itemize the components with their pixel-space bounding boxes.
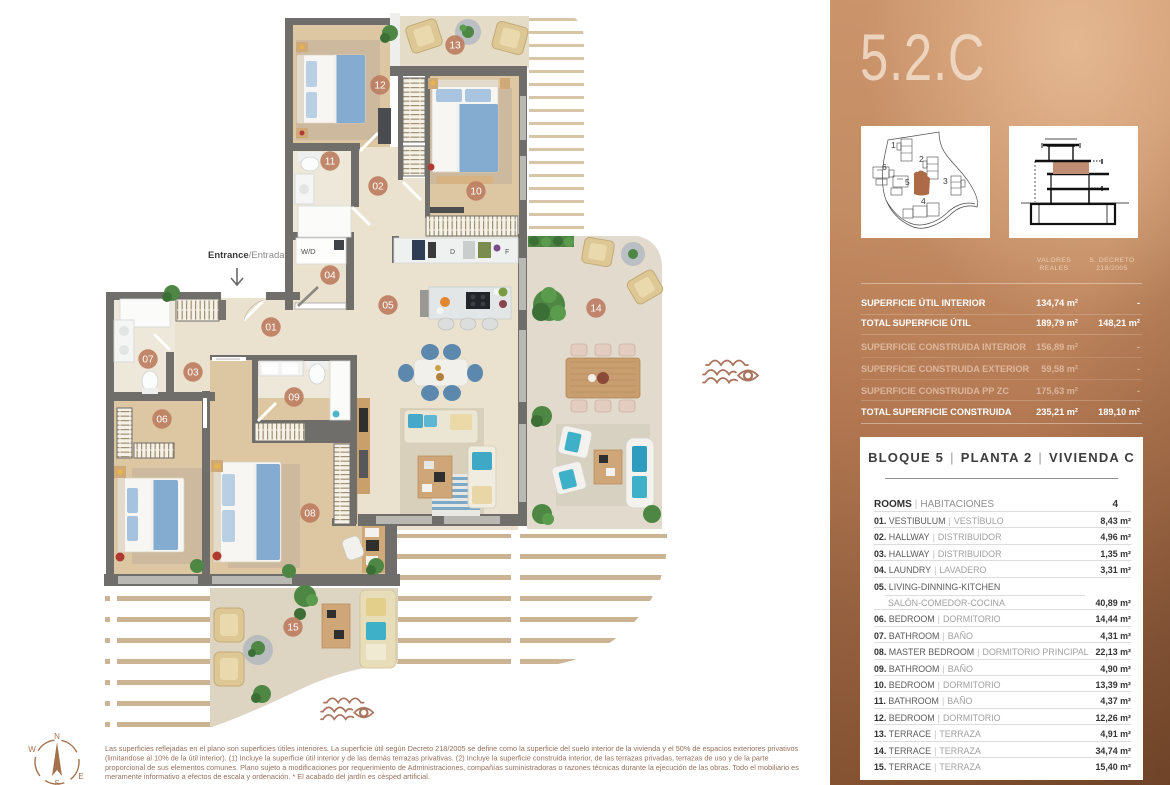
svg-text:Entrance/Entrada: Entrance/Entrada [208,250,285,261]
svg-text:02: 02 [372,182,384,193]
svg-text:5: 5 [905,177,910,187]
svg-text:04: 04 [324,271,336,282]
svg-text:Las superficies reflejadas en: Las superficies reflejadas en el plano s… [105,744,799,753]
svg-text:N: N [54,732,60,741]
svg-text:03: 03 [187,368,199,379]
svg-text:6: 6 [882,162,887,172]
svg-text:14: 14 [590,304,602,315]
svg-text:08: 08 [304,509,316,520]
svg-text:01: 01 [265,323,277,334]
svg-text:1: 1 [891,140,896,150]
svg-text:13: 13 [449,41,461,52]
svg-text:11: 11 [325,157,336,168]
svg-text:W: W [28,745,36,754]
svg-text:S: S [54,779,59,785]
svg-text:F: F [505,249,509,256]
svg-text:10: 10 [470,187,482,198]
svg-text:09: 09 [288,393,300,404]
svg-text:15: 15 [287,623,299,634]
svg-text:W/D: W/D [301,247,316,256]
svg-text:proporcional de sus elementos: proporcional de sus elementos comunes. P… [105,763,799,772]
svg-text:meramente informativo a efecto: meramente informativo a efectos de escal… [105,772,430,781]
svg-text:2: 2 [919,154,924,164]
svg-text:12: 12 [374,81,386,92]
svg-text:06: 06 [156,415,168,426]
svg-text:4: 4 [921,196,926,206]
svg-text:E: E [78,772,83,781]
svg-text:D: D [450,249,455,256]
svg-text:05: 05 [382,301,394,312]
svg-text:07: 07 [142,355,154,366]
svg-text:(limitandose al 10% de la útil: (limitandose al 10% de la útil interior)… [105,753,769,762]
svg-text:3: 3 [943,176,948,186]
